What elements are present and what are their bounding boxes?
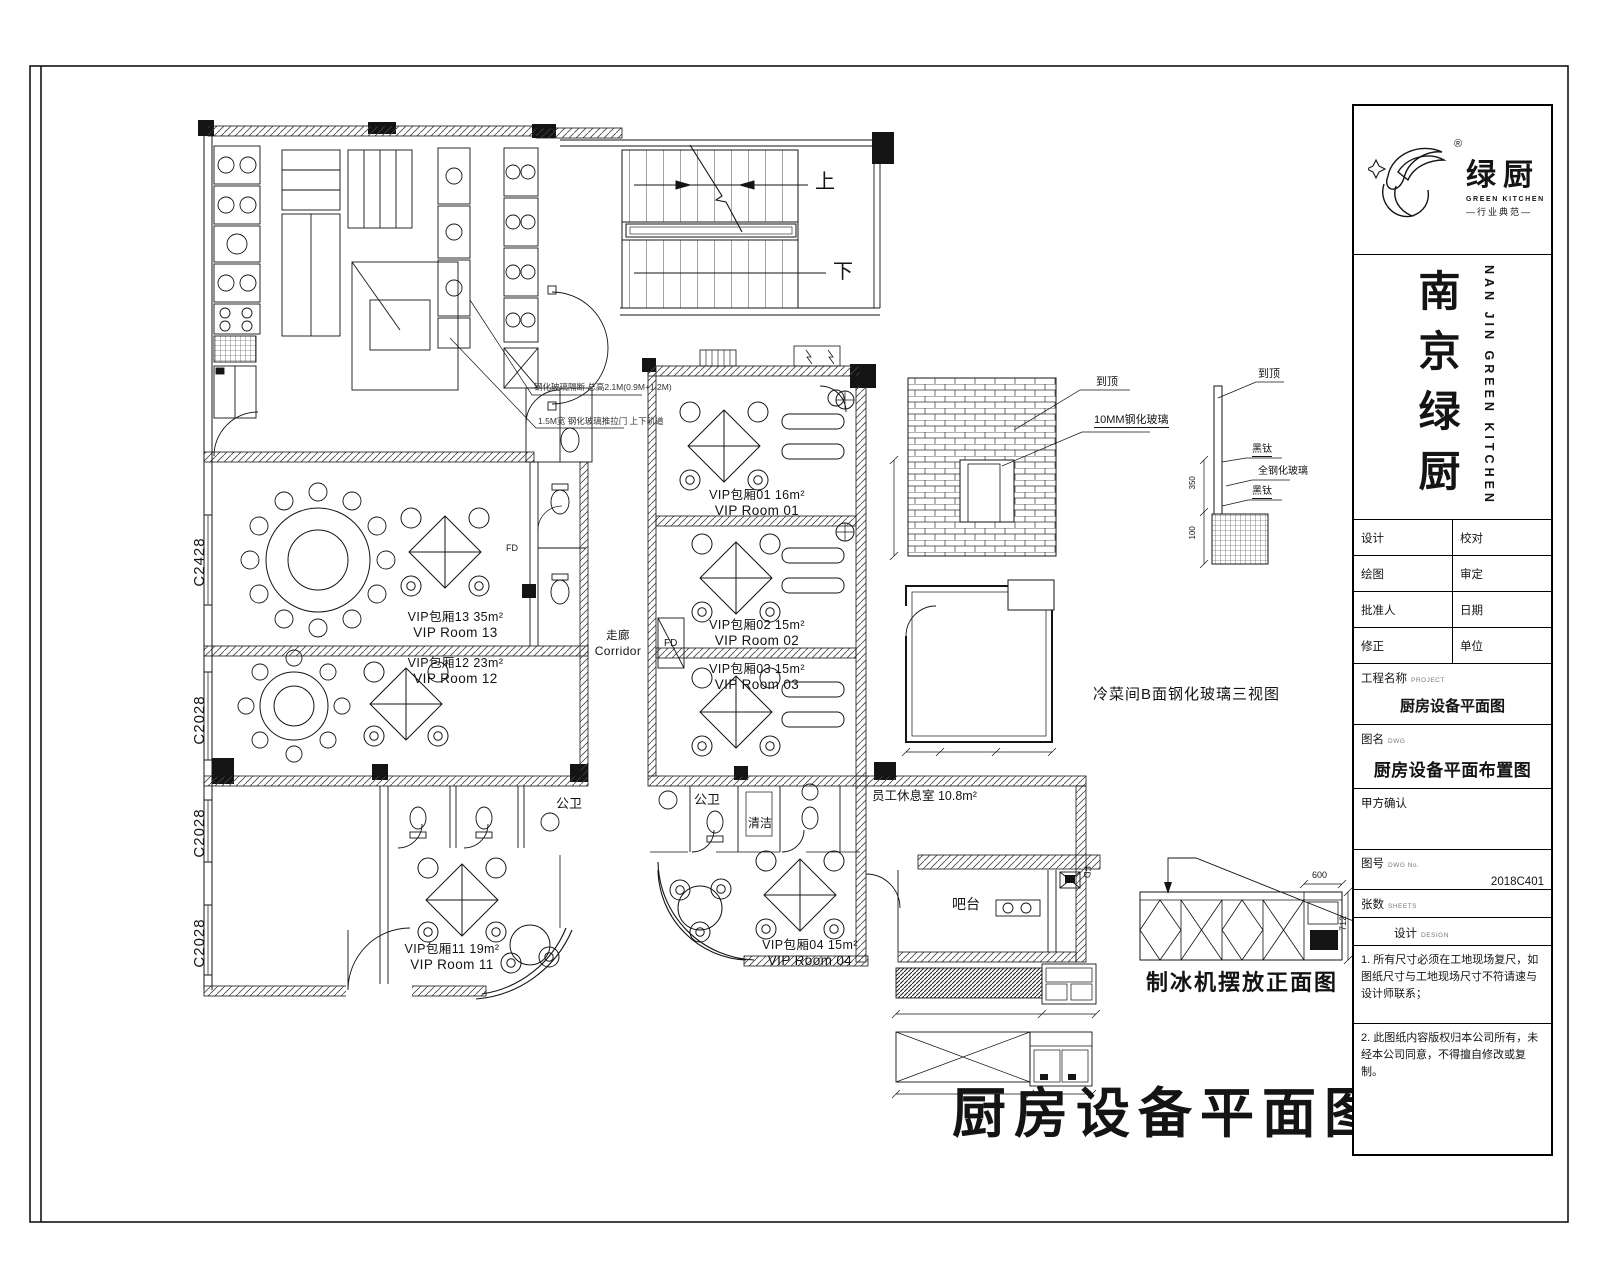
wc-label-left: 公卫 — [556, 796, 582, 812]
room-label-vip12: VIP包厢12 23m² VIP Room 12 — [398, 656, 513, 687]
kitchen-equipment — [214, 146, 538, 456]
project-label: 工程名称 — [1361, 673, 1407, 685]
dwg-no-value: 2018C401 — [1361, 876, 1544, 888]
field-date: 日期 — [1453, 592, 1551, 627]
client-confirm-label: 甲方确认 — [1361, 798, 1407, 810]
logo-cell: ® 绿厨 GREEN KITCHEN —行业典范— — [1354, 106, 1551, 255]
room-label-vip03: VIP包厢03 15m² VIP Room 03 — [692, 662, 822, 693]
dwg-name-sublabel: DWG — [1388, 738, 1405, 745]
green-kitchen-logo-icon — [1368, 132, 1460, 232]
dim-350: 350 — [1188, 476, 1198, 489]
room-label-vip11: VIP包厢11 19m² VIP Room 11 — [392, 942, 512, 973]
kitchen-note-1: 钢化玻璃隔断 总高2.1M(0.9M+1.2M) — [534, 382, 672, 392]
note-1: 1. 所有尺寸必须在工地现场复尺，如图纸尺寸与工地现场尺寸不符请速与设计师联系； — [1354, 946, 1551, 1003]
field-draw: 绘图 — [1354, 556, 1453, 591]
leader-glass: 10MM钢化玻璃 — [1094, 414, 1169, 428]
drawing-canvas: 上 下 钢化玻璃隔断 总高2.1M(0.9M+1.2M) 1.5M宽 钢化玻璃推… — [0, 0, 1600, 1280]
field-unit: 单位 — [1453, 628, 1551, 663]
ice-machine-view-title: 制冰机摆放正面图 — [1146, 970, 1338, 996]
note-1-cell: 1. 所有尺寸必须在工地现场复尺，如图纸尺寸与工地现场尺寸不符请速与设计师联系； — [1354, 946, 1551, 1024]
dwg-name-value: 厨房设备平面布置图 — [1361, 756, 1544, 781]
window-code-2: C2028 — [191, 690, 209, 750]
client-confirm-cell: 甲方确认 — [1354, 789, 1551, 850]
registered-mark: ® — [1454, 138, 1462, 151]
brick-elevation — [890, 378, 1150, 560]
room-label-vip04: VIP包厢04 15m² VIP Room 04 — [745, 938, 875, 969]
field-approve: 审定 — [1453, 556, 1551, 591]
ice-machine-view — [1140, 858, 1376, 964]
leader-to-ceiling-1: 到顶 — [1096, 376, 1118, 389]
leader-black-ti-2: 黑钛 — [1252, 486, 1272, 499]
dim-712: 712 — [1338, 916, 1349, 931]
project-cell: 工程名称PROJECT 厨房设备平面图 — [1354, 664, 1551, 725]
note-2: 2. 此图纸内容版权归本公司所有，未经本公司同意，不得擅自修改或复制。 — [1354, 1024, 1551, 1081]
dwg-no-sublabel: DWG No. — [1388, 862, 1419, 869]
note-2-cell: 2. 此图纸内容版权归本公司所有，未经本公司同意，不得擅自修改或复制。 — [1354, 1024, 1551, 1154]
company-name-cn: 南京绿厨 — [1406, 269, 1467, 509]
row-design-check: 设计 校对 — [1354, 520, 1551, 556]
leader-to-ceiling-2: 到顶 — [1258, 368, 1280, 381]
field-ratify: 批准人 — [1354, 592, 1453, 627]
leader-black-ti-1: 黑钛 — [1252, 444, 1272, 457]
brand-slogan: —行业典范— — [1466, 205, 1550, 218]
row-draw-approve: 绘图 审定 — [1354, 556, 1551, 592]
row-ratify-date: 批准人 日期 — [1354, 592, 1551, 628]
room-label-vip02: VIP包厢02 15m² VIP Room 02 — [692, 618, 822, 649]
design-label: 设计 — [1394, 928, 1417, 940]
brand-name-en: GREEN KITCHEN — [1466, 196, 1550, 203]
kitchen-doors-leaders — [450, 286, 642, 462]
sheets-cell: 张数SHEETS — [1354, 890, 1551, 918]
field-check: 校对 — [1453, 520, 1551, 555]
dwg-no-cell: 图号DWG No. 2018C401 — [1354, 850, 1551, 890]
company-name-en: NAN JIN GREEN KITCHEN — [1482, 265, 1496, 513]
project-value: 厨房设备平面图 — [1361, 695, 1544, 716]
room-label-vip13: VIP包厢13 35m² VIP Room 13 — [398, 610, 513, 641]
stairs — [560, 140, 894, 315]
wc-label-right: 公卫 — [694, 792, 720, 808]
cold-room-plan — [902, 580, 1056, 756]
bar-label: 吧台 — [952, 896, 980, 913]
design-sublabel: DESIGN — [1421, 932, 1449, 939]
fd-label-2: FD — [664, 638, 677, 650]
title-block: ® 绿厨 GREEN KITCHEN —行业典范— 南京绿厨 NAN JIN G… — [1352, 104, 1553, 1156]
fd-label-3: FD — [1081, 866, 1092, 878]
corridor-label: 走廊 Corridor — [590, 630, 646, 658]
brand-name-cn: 绿厨 — [1466, 150, 1550, 194]
window-code-3: C2028 — [191, 803, 209, 863]
dwg-no-label: 图号 — [1361, 858, 1384, 870]
staff-room-label: 员工休息室 10.8m² — [872, 789, 977, 804]
bar-area — [898, 870, 1080, 952]
sheets-sublabel: SHEETS — [1388, 903, 1417, 910]
company-cell: 南京绿厨 NAN JIN GREEN KITCHEN — [1354, 255, 1551, 520]
stairs-down-label: 下 — [833, 260, 853, 284]
dwg-name-label: 图名 — [1361, 734, 1384, 746]
dim-100: 100 — [1188, 526, 1198, 539]
main-title: 厨房设备平面图 — [952, 1082, 1386, 1147]
dwg-name-cell: 图名DWG 厨房设备平面布置图 — [1354, 725, 1551, 789]
cleaning-label: 清洁 — [748, 816, 772, 830]
fd-label-1: FD — [506, 543, 518, 554]
row-revise-unit: 修正 单位 — [1354, 628, 1551, 664]
cold-room-view-title: 冷菜间B面钢化玻璃三视图 — [1093, 686, 1280, 704]
stairs-up-label: 上 — [815, 170, 835, 194]
dim-600: 600 — [1312, 870, 1327, 881]
window-code-4: C2028 — [191, 913, 209, 973]
kitchen-note-2: 1.5M宽 钢化玻璃推拉门 上下轨道 — [538, 416, 664, 426]
leader-steel-glass: 全钢化玻璃 — [1258, 466, 1308, 478]
room-label-vip01: VIP包厢01 16m² VIP Room 01 — [692, 488, 822, 519]
design-cell: 设计DESIGN — [1354, 918, 1551, 946]
field-design: 设计 — [1354, 520, 1453, 555]
window-code-1: C2428 — [191, 532, 209, 592]
sheets-label: 张数 — [1361, 899, 1384, 911]
wc-column — [530, 462, 586, 646]
field-revise: 修正 — [1354, 628, 1453, 663]
elevation-strips — [892, 964, 1100, 1098]
project-sublabel: PROJECT — [1411, 677, 1445, 684]
